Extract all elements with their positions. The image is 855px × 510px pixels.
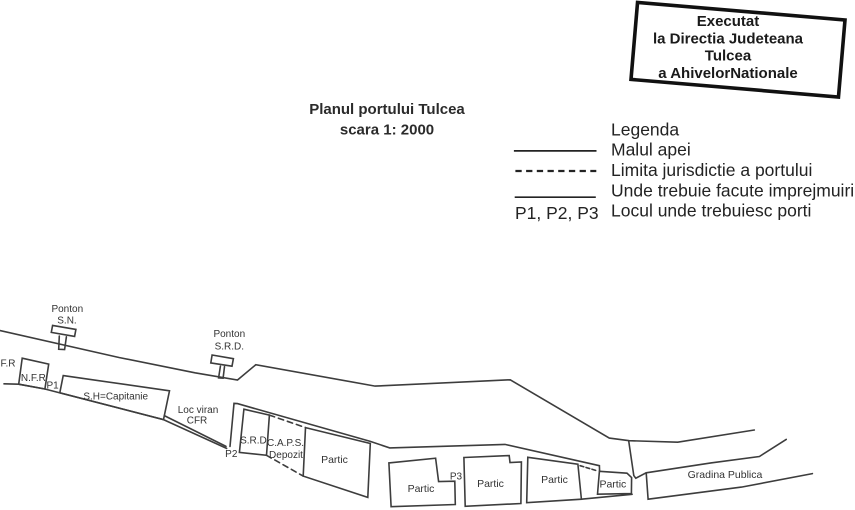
svg-text:la Directia Judeteana: la Directia Judeteana — [653, 31, 804, 48]
svg-text:S.R.D.: S.R.D. — [215, 342, 244, 353]
svg-text:scara 1: 2000: scara 1: 2000 — [340, 122, 434, 139]
svg-text:S.H=Capitanie: S.H=Capitanie — [83, 392, 148, 403]
svg-text:Limita jurisdictie a portului: Limita jurisdictie a portului — [611, 160, 812, 180]
svg-text:Malul apei: Malul apei — [611, 140, 691, 160]
svg-text:Gradina Publica: Gradina Publica — [688, 469, 763, 481]
svg-text:P2: P2 — [225, 449, 238, 460]
svg-text:S.R.D: S.R.D — [240, 435, 267, 446]
svg-text:Ponton: Ponton — [51, 304, 83, 315]
svg-text:F.R: F.R — [1, 359, 16, 370]
svg-text:C.A.P.S.: C.A.P.S. — [267, 438, 304, 449]
svg-text:Ponton: Ponton — [213, 329, 245, 340]
svg-text:Planul portului Tulcea: Planul portului Tulcea — [309, 101, 465, 118]
svg-text:Partic: Partic — [541, 474, 568, 486]
svg-text:Depozit: Depozit — [269, 450, 303, 461]
svg-text:Legenda: Legenda — [611, 119, 679, 139]
svg-text:Executat: Executat — [697, 13, 760, 30]
svg-text:Tulcea: Tulcea — [705, 48, 752, 65]
svg-text:P1, P2, P3: P1, P2, P3 — [515, 203, 599, 223]
svg-text:a AhivelorNationale: a AhivelorNationale — [658, 65, 797, 82]
svg-text:Unde trebuie facute imprejmuir: Unde trebuie facute imprejmuiri — [611, 180, 854, 200]
svg-text:Locul unde trebuiesc porti: Locul unde trebuiesc porti — [611, 201, 811, 221]
svg-text:N.F.R: N.F.R — [21, 373, 46, 384]
svg-text:P3: P3 — [450, 471, 463, 482]
svg-text:Loc viran: Loc viran — [178, 405, 219, 416]
svg-text:S.N.: S.N. — [57, 316, 76, 327]
svg-text:Partic: Partic — [408, 483, 435, 495]
svg-text:Partic: Partic — [599, 479, 626, 491]
svg-text:P1: P1 — [46, 380, 59, 391]
svg-text:Partic: Partic — [321, 454, 348, 466]
svg-text:CFR: CFR — [187, 416, 208, 427]
svg-text:Partic: Partic — [477, 478, 504, 490]
